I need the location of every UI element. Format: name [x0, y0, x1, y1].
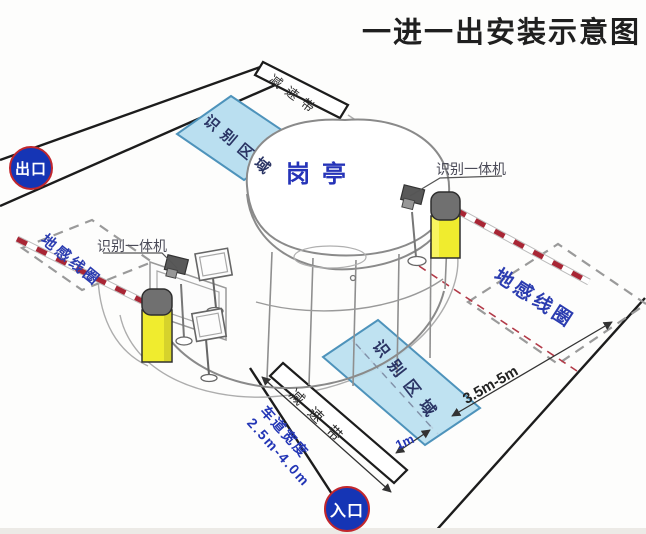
installation-diagram: 一进一出安装示意图 出口 入口 岗亭 识别区域 识别区域 地感线圈 地感线圈 识…: [0, 0, 646, 534]
booth-post: [267, 252, 272, 378]
camera-base: [176, 337, 192, 345]
entrance-badge: 入口: [324, 486, 370, 532]
entrance-badge-label: 入口: [330, 497, 364, 521]
machine-body-shade: [164, 311, 171, 361]
camera-lens: [402, 198, 415, 209]
sign-face: [192, 309, 226, 342]
booth-label: 岗亭: [286, 154, 358, 189]
exit-badge-label: 出口: [15, 158, 47, 179]
photo-edge-strip: [0, 528, 646, 534]
sign-board-lower: [192, 309, 226, 382]
camera-lens: [166, 268, 178, 278]
machine-body-highlight: [432, 217, 439, 257]
entry-barrier-machine: [431, 192, 460, 258]
machine-cap: [142, 289, 172, 315]
sign-base: [201, 375, 217, 382]
entry-barrier-arm: [456, 210, 589, 282]
booth-door-handle: [351, 276, 356, 281]
camera-base: [408, 257, 426, 266]
exit-badge: 出口: [9, 146, 53, 190]
booth-post: [309, 258, 313, 385]
exit-reader-label: 识别一体机: [97, 236, 167, 256]
machine-cap: [431, 192, 460, 220]
booth-post: [430, 243, 431, 358]
entry-reader-label: 识别一体机: [436, 159, 506, 179]
exit-barrier-machine: [142, 289, 172, 362]
booth-window-sill: [256, 279, 443, 311]
diagram-title: 一进一出安装示意图: [362, 9, 641, 51]
